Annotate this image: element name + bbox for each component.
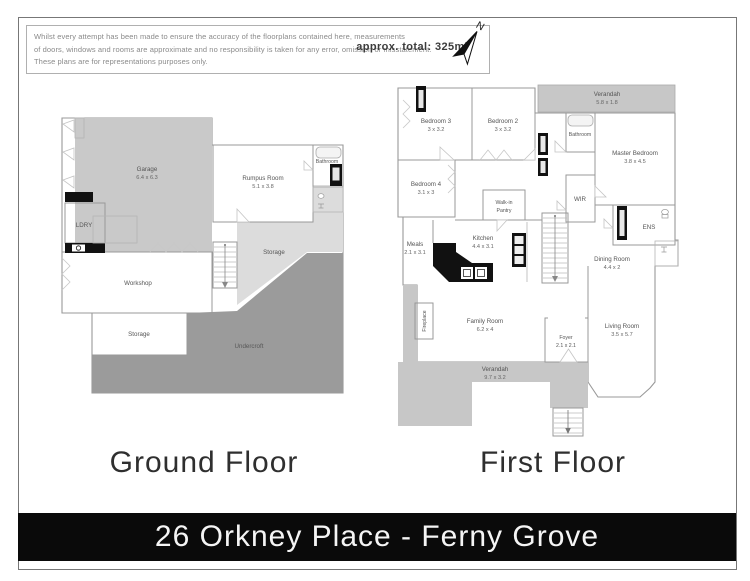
ff-label-bedroom3-dims: 3 x 3.2	[428, 127, 445, 133]
ff-label-dining-dims: 4.4 x 2	[604, 265, 621, 271]
ff-label-meals-name: Meals	[407, 241, 424, 248]
ff-label-bedroom2-dims: 3 x 3.2	[495, 127, 512, 133]
toilet-icon	[662, 209, 669, 214]
ff-label-bedroom4-name: Bedroom 4	[411, 181, 442, 188]
ground-floor-plan: Garage 6.4 x 6.3 Rumpus Room 5.1 x 3.8 B…	[62, 118, 343, 393]
stove-icon	[461, 267, 473, 279]
gf-bath-window-pane	[333, 168, 340, 181]
ff-label-ens: ENS	[643, 224, 656, 231]
ff-label-living-name: Living Room	[605, 323, 639, 330]
ff-label-bathroom: Bathroom	[569, 132, 592, 138]
first-floor-title: First Floor	[480, 446, 626, 480]
ff-label-verandah-bottom-name: Verandah	[482, 366, 509, 373]
ff-label-kitchen-name: Kitchen	[473, 235, 494, 242]
ff-verandah-top-floor	[538, 85, 675, 112]
ff-label-foyer-name: Foyer	[559, 335, 573, 341]
gf-label-laundry: LDRY	[76, 222, 92, 229]
footer-bar: 26 Orkney Place - Ferny Grove	[18, 513, 736, 561]
gf-label-storage-upper: Storage	[263, 249, 285, 256]
gf-label-rumpus-name: Rumpus Room	[242, 175, 283, 182]
first-floor-plan: Verandah 5.8 x 1.8 Bedroom 3 3 x 3.2 Bed…	[398, 85, 678, 436]
ff-label-verandah-bottom-dims: 9.7 x 3.2	[484, 375, 505, 381]
gf-label-workshop: Workshop	[124, 280, 152, 287]
ff-label-verandah-top-dims: 5.8 x 1.8	[596, 100, 617, 106]
gf-label-garage-name: Garage	[137, 166, 158, 173]
ff-label-living-dims: 3.5 x 5.7	[611, 332, 632, 338]
ff-oven-stack	[512, 233, 526, 267]
ff-label-meals-dims: 2.1 x 3.1	[404, 250, 425, 256]
ff-label-kitchen-dims: 4.4 x 3.1	[472, 244, 493, 250]
ff-exterior-stairs	[553, 408, 583, 436]
gf-wall-accent-1	[65, 192, 93, 202]
gf-label-garage-dims: 6.4 x 6.3	[136, 175, 157, 181]
gf-label-rumpus-dims: 5.1 x 3.8	[252, 184, 273, 190]
ff-label-family-dims: 6.2 x 4	[477, 327, 494, 333]
ff-label-verandah-top-name: Verandah	[594, 91, 621, 98]
ff-label-bedroom4-dims: 3.1 x 3	[418, 190, 435, 196]
ff-label-bedroom2-name: Bedroom 2	[488, 118, 519, 125]
bathtub-icon	[316, 147, 341, 158]
ff-label-wir: WIR	[574, 196, 587, 203]
ff-label-master-name: Master Bedroom	[612, 150, 658, 157]
ff-label-pantry-line1: Walk-in	[495, 200, 512, 206]
ff-label-pantry-line2: Pantry	[497, 208, 512, 214]
ff-label-family-name: Family Room	[467, 318, 503, 325]
ff-label-foyer-dims: 2.1 x 2.1	[556, 343, 576, 349]
property-address: 26 Orkney Place - Ferny Grove	[155, 520, 599, 554]
ff-label-master-dims: 3.8 x 4.5	[624, 159, 645, 165]
ff-label-fireplace: Fireplace	[422, 310, 428, 331]
floorplans-canvas: Garage 6.4 x 6.3 Rumpus Room 5.1 x 3.8 B…	[0, 0, 750, 581]
ff-label-dining-name: Dining Room	[594, 256, 630, 263]
ground-floor-title: Ground Floor	[110, 446, 299, 480]
stove-icon-2	[475, 267, 487, 279]
floorplan-page: Whilst every attempt has been made to en…	[0, 0, 750, 581]
gf-label-storage-lower: Storage	[128, 331, 150, 338]
toilet-icon	[318, 194, 324, 199]
gf-label-bathroom: Bathroom	[316, 159, 339, 165]
ff-ens-fixtures	[662, 209, 669, 218]
gf-garage-floor	[75, 118, 212, 252]
ff-label-bedroom3-name: Bedroom 3	[421, 118, 452, 125]
bathtub-icon	[568, 115, 593, 126]
ff-deck-strip	[403, 285, 418, 362]
ff-landing-block	[550, 382, 588, 408]
gf-label-undercroft: Undercroft	[235, 343, 264, 350]
